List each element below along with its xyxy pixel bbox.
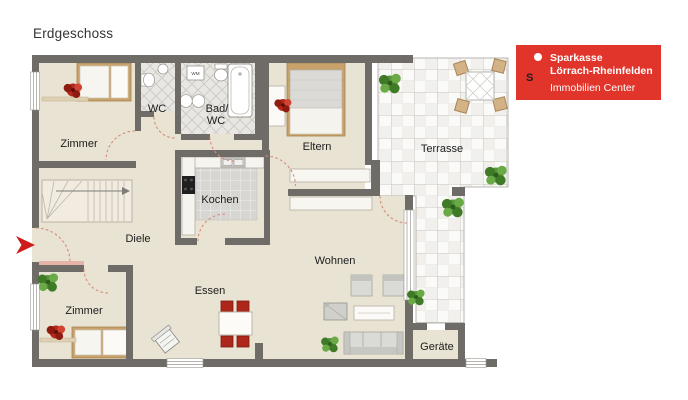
floor-plan-page: Erdgeschoss S Sparkasse Lörrach-Rheinfel… <box>0 0 688 400</box>
toilet-icon <box>215 64 228 81</box>
sideboard-wohnen <box>290 197 372 210</box>
staircase <box>42 180 132 222</box>
window-zimmer-bottom <box>31 284 40 330</box>
bed-zimmer-bottom <box>72 327 130 358</box>
coffee-table <box>354 306 394 320</box>
tv-cabinet <box>324 303 347 320</box>
wc-sink-icon <box>158 64 168 74</box>
kitchen-sink <box>221 158 245 167</box>
room-label-zimmer-bottom: Zimmer <box>65 305 103 317</box>
door-lintel <box>39 261 84 265</box>
room-label-bad-line1: Bad/ <box>206 103 230 115</box>
sideboard-eltern <box>290 169 370 182</box>
room-label-wohnen: Wohnen <box>315 255 356 267</box>
window-zimmer-top <box>31 72 40 110</box>
shelf-zimmer-top <box>42 97 88 101</box>
bed-eltern <box>287 63 345 136</box>
bed-zimmer-top <box>77 63 131 101</box>
svg-text:WM: WM <box>191 71 199 76</box>
wc-toilet-icon <box>141 73 155 87</box>
window-essen <box>167 359 203 368</box>
room-label-zimmer-top: Zimmer <box>60 138 98 150</box>
kitchen-counter-left <box>182 157 195 235</box>
room-label-eltern: Eltern <box>303 141 332 153</box>
armchair-2 <box>383 275 404 296</box>
room-label-geraete: Geräte <box>420 341 454 353</box>
sofa <box>344 332 403 354</box>
armchair-1 <box>351 275 372 296</box>
washing-machine: WM <box>187 66 204 80</box>
room-label-bad-line2: WC <box>207 115 225 127</box>
window-right-bottom <box>466 359 486 368</box>
room-label-kochen: Kochen <box>201 194 238 206</box>
room-label-essen: Essen <box>195 285 226 297</box>
stove-icon <box>182 176 195 194</box>
floor-plan: WM <box>0 0 688 400</box>
bathtub-icon <box>228 64 252 117</box>
room-label-diele: Diele <box>125 233 150 245</box>
room-label-terrasse: Terrasse <box>421 143 463 155</box>
room-label-wc: WC <box>148 103 166 115</box>
